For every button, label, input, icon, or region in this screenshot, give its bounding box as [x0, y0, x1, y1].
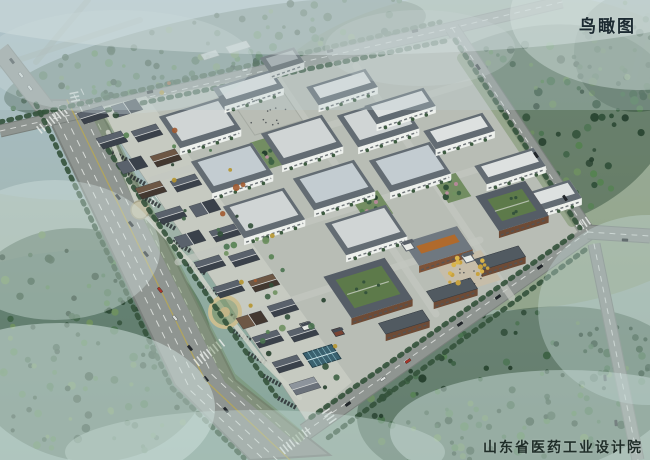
foundation-tree [321, 212, 325, 216]
campus-tree [233, 184, 240, 191]
campus-tree [279, 325, 286, 332]
foundation-tree [289, 167, 293, 171]
foundation-tree [411, 117, 415, 121]
forest-tree [575, 142, 582, 149]
plaza-tree [486, 266, 490, 270]
forest-tree [598, 114, 605, 121]
plaza-tree [455, 256, 460, 261]
foundation-tree [251, 240, 255, 244]
forest-tree [572, 130, 581, 139]
forest-tree [501, 329, 508, 336]
forest-tree [522, 113, 530, 121]
forest-tree [379, 414, 383, 418]
plaza-tree [476, 272, 480, 276]
people-dot [463, 272, 465, 274]
forest-tree [451, 361, 456, 366]
campus-tree [265, 294, 271, 300]
plaza-tree [483, 263, 487, 267]
foundation-tree [408, 136, 412, 140]
foundation-tree [521, 177, 525, 181]
foundation-tree [332, 154, 336, 158]
forest-tree [592, 148, 596, 152]
foundation-tree [470, 142, 474, 146]
foundation-tree [380, 144, 384, 148]
campus-tree [182, 217, 186, 221]
campus-tree [224, 244, 230, 250]
people-dot [459, 272, 461, 274]
foundation-tree [424, 113, 428, 117]
foundation-tree [384, 126, 388, 130]
campus-tree [333, 374, 339, 380]
campus-tree [183, 209, 186, 212]
courtyard-tree [355, 288, 358, 291]
campus-tree [228, 168, 232, 172]
forest-tree [605, 162, 612, 169]
plaza-tree [451, 262, 456, 267]
forest-tree [539, 131, 544, 136]
forest-tree [590, 170, 597, 177]
foundation-tree [216, 141, 220, 145]
campus-tree [217, 228, 221, 232]
courtyard-tree [510, 197, 513, 200]
campus-tree [172, 178, 177, 183]
people-dot [481, 274, 483, 276]
courtyard-tree [514, 196, 517, 199]
forest-tree [543, 352, 551, 360]
campus-tree [323, 385, 327, 389]
forest-tree [538, 138, 546, 146]
people-dot [272, 124, 274, 126]
forest-tree [521, 310, 527, 316]
foundation-tree [294, 227, 298, 231]
forest-tree [503, 359, 510, 366]
garden-tree [374, 200, 378, 204]
plaza-tree [480, 258, 485, 263]
garden-tree [443, 194, 449, 200]
campus-tree [260, 338, 266, 344]
forest-tree [484, 366, 489, 371]
plaza-tree [480, 269, 484, 273]
rendering-canvas [0, 0, 650, 460]
forest-tree [608, 185, 614, 191]
forest-tree [418, 374, 426, 382]
people-dot [276, 120, 278, 122]
foundation-tree [365, 149, 369, 153]
forest-tree [515, 321, 519, 325]
people-dot [267, 110, 269, 112]
forest-tree [609, 114, 614, 119]
garden-tree [265, 155, 269, 159]
campus-tree [224, 251, 229, 256]
garden-tree [452, 192, 456, 196]
foundation-tree [483, 138, 487, 142]
campus-tree [231, 242, 238, 249]
garden-tree [457, 191, 462, 196]
foundation-tree [443, 151, 447, 155]
forest-tree [508, 366, 512, 370]
campus-tree [269, 254, 274, 259]
campus-tree [266, 351, 272, 357]
forest-tree [574, 168, 581, 175]
foundation-tree [456, 147, 460, 151]
foundation-tree [219, 195, 223, 199]
forest-tree [589, 157, 594, 162]
plaza-tree [448, 271, 452, 275]
foundation-tree [368, 252, 372, 256]
foundation-tree [394, 140, 398, 144]
foundation-tree [248, 186, 252, 190]
design-institute-label: 山东省医药工业设计院 [483, 437, 643, 457]
foundation-tree [570, 205, 574, 209]
people-dot [473, 270, 475, 272]
forest-tree [597, 179, 604, 186]
plaza-tree [455, 280, 460, 285]
forest-tree [410, 392, 416, 398]
courtyard-tree [362, 280, 365, 283]
people-dot [263, 119, 265, 121]
campus-tree [209, 149, 212, 152]
campus-tree [217, 231, 223, 237]
aerial-rendering: 鸟瞰图 山东省医药工业设计院 [0, 0, 650, 460]
foundation-tree [202, 145, 206, 149]
garden-tree [269, 157, 273, 161]
campus-tree [171, 163, 174, 166]
foundation-tree [426, 185, 430, 189]
garden-tree [443, 184, 449, 190]
courtyard-tree [364, 291, 367, 294]
foundation-tree [412, 189, 416, 193]
plaza-tree [478, 264, 483, 269]
foundation-tree [304, 162, 308, 166]
campus-tree [248, 223, 253, 228]
foundation-tree [353, 257, 357, 261]
campus-tree [280, 268, 284, 272]
foundation-tree [397, 122, 401, 126]
foundation-tree [397, 194, 401, 198]
foundation-tree [187, 150, 191, 154]
courtyard-tree [512, 212, 515, 215]
campus-tree [266, 330, 270, 334]
campus-tree [270, 233, 275, 238]
campus-tree [273, 290, 278, 295]
foundation-tree [396, 244, 400, 248]
forest-tree [622, 114, 629, 121]
campus-tree [220, 211, 225, 216]
forest-tree [588, 203, 594, 209]
campus-tree [172, 128, 178, 134]
garden-tree [454, 182, 458, 186]
campus-tree [322, 363, 329, 370]
foundation-tree [350, 203, 354, 207]
forest-tree [638, 129, 645, 136]
foundation-tree [494, 186, 498, 190]
garden-tree [445, 191, 449, 195]
foundation-tree [557, 209, 561, 213]
campus-tree [123, 132, 129, 138]
campus-tree [285, 314, 291, 320]
people-dot [468, 278, 470, 280]
forest-tree [117, 320, 122, 325]
forest-tree [563, 151, 570, 158]
foundation-tree [280, 231, 284, 235]
forest-tree [7, 316, 13, 322]
campus-tree [308, 323, 315, 330]
foundation-tree [534, 173, 538, 177]
courtyard-tree [377, 284, 380, 287]
people-dot [277, 123, 279, 125]
foundation-tree [318, 158, 322, 162]
campus-tree [262, 237, 269, 244]
campus-tree [269, 283, 274, 288]
people-dot [459, 268, 461, 270]
campus-tree [333, 344, 337, 348]
people-dot [474, 283, 476, 285]
plaza-tree [448, 280, 451, 283]
campus-tree [241, 182, 246, 187]
foundation-tree [507, 182, 511, 186]
forest-tree [584, 124, 592, 132]
campus-tree [235, 215, 238, 218]
forest-tree [372, 413, 378, 419]
forest-tree [590, 113, 599, 122]
campus-tree [321, 298, 326, 303]
campus-tree [172, 144, 176, 148]
people-dot [250, 122, 252, 124]
foundation-tree [262, 182, 266, 186]
foundation-tree [364, 199, 368, 203]
campus-tree [239, 280, 244, 285]
campus-tree [249, 304, 253, 308]
campus-tree [255, 237, 259, 241]
view-title-label: 鸟瞰图 [579, 12, 636, 37]
forest-tree [111, 309, 118, 316]
forest-tree [612, 122, 617, 127]
foundation-tree [440, 181, 444, 185]
foundation-tree [336, 207, 340, 211]
forest-tree [383, 387, 387, 391]
foundation-tree [230, 137, 234, 141]
foundation-tree [382, 248, 386, 252]
plaza-tree [455, 260, 460, 265]
campus-tree [254, 279, 257, 282]
forest-tree [514, 331, 518, 335]
forest-tree [408, 369, 413, 374]
people-dot [480, 278, 482, 280]
forest-tree [591, 182, 597, 188]
forest-tree [556, 132, 561, 137]
people-dot [265, 122, 267, 124]
fog [325, 10, 515, 86]
